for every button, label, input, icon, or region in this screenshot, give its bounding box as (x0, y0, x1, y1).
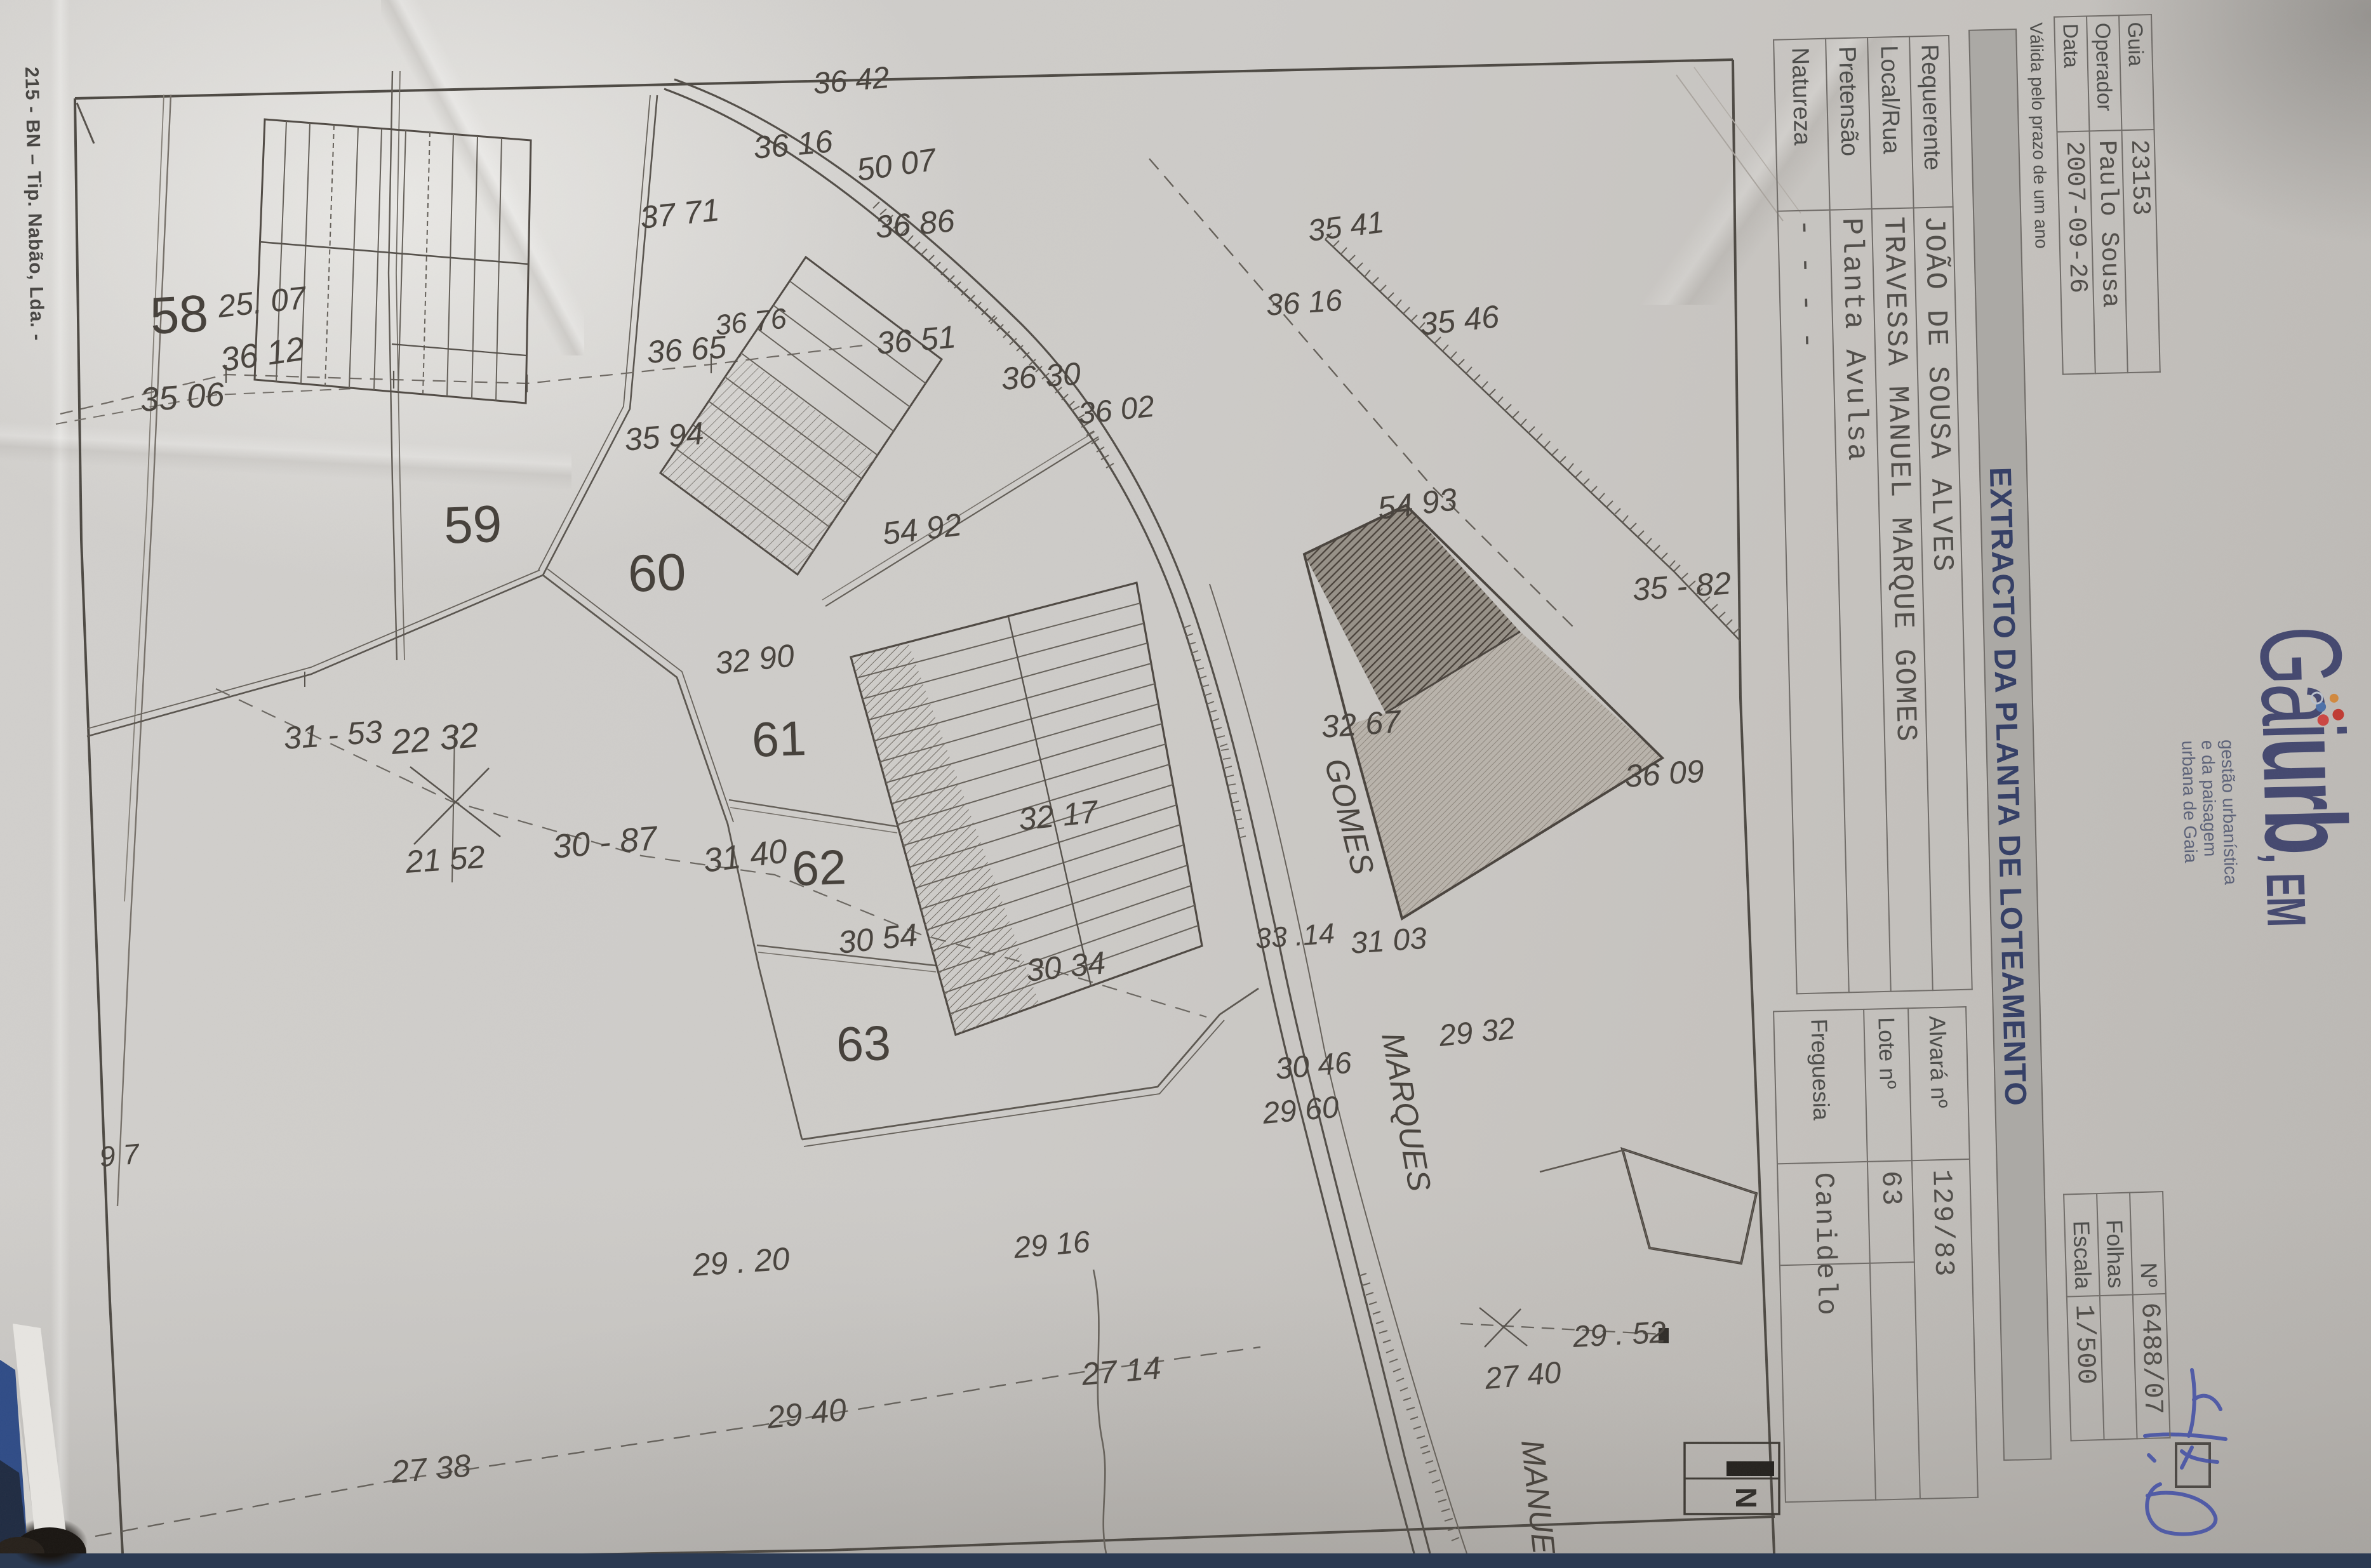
svg-text:9 7: 9 7 (98, 1138, 142, 1173)
svg-text:22 32: 22 32 (389, 715, 481, 762)
svg-text:54 92: 54 92 (881, 507, 964, 552)
svg-text:61: 61 (751, 711, 808, 767)
svg-text:54 93: 54 93 (1376, 481, 1459, 526)
svg-text:32 67: 32 67 (1320, 703, 1403, 745)
svg-text:MARQUES: MARQUES (1375, 1030, 1438, 1194)
svg-text:35 41: 35 41 (1306, 206, 1386, 248)
svg-text:29 . 20: 29 . 20 (691, 1240, 791, 1283)
svg-text:63: 63 (836, 1016, 892, 1072)
svg-text:31 - 53: 31 - 53 (283, 714, 384, 756)
svg-text:35 46: 35 46 (1418, 298, 1500, 342)
svg-text:60: 60 (627, 543, 686, 603)
svg-text:36 65: 36 65 (646, 329, 728, 370)
svg-text:36 12: 36 12 (218, 330, 307, 379)
svg-text:35 06: 35 06 (139, 376, 226, 419)
svg-text:30 46: 30 46 (1274, 1046, 1353, 1086)
svg-text:31 03: 31 03 (1349, 922, 1428, 960)
svg-text:36 51: 36 51 (875, 319, 958, 361)
svg-text:32 17: 32 17 (1017, 794, 1100, 837)
svg-text:25. 07: 25. 07 (215, 279, 309, 324)
svg-text:29 . 52: 29 . 52 (1572, 1315, 1667, 1354)
svg-text:30 - 87: 30 - 87 (551, 820, 660, 866)
svg-text:36 30: 36 30 (1000, 355, 1082, 397)
svg-text:29 16: 29 16 (1012, 1225, 1092, 1265)
svg-text:27 38: 27 38 (389, 1447, 472, 1490)
svg-text:27 14: 27 14 (1079, 1350, 1163, 1392)
svg-text:36 16: 36 16 (1265, 284, 1344, 322)
svg-text:36 02: 36 02 (1077, 390, 1156, 431)
svg-text:29 40: 29 40 (765, 1392, 848, 1435)
svg-text:27 40: 27 40 (1483, 1356, 1563, 1396)
svg-text:36 09: 36 09 (1624, 753, 1706, 794)
svg-text:36 76: 36 76 (714, 302, 789, 342)
svg-text:36 42: 36 42 (811, 61, 890, 101)
svg-text:21 52: 21 52 (404, 839, 486, 880)
svg-text:30 34: 30 34 (1024, 945, 1107, 988)
svg-text:MANUE: MANUE (1514, 1438, 1562, 1553)
svg-text:35 - 82: 35 - 82 (1631, 565, 1732, 608)
svg-text:29 60: 29 60 (1260, 1091, 1340, 1131)
svg-text:30 54: 30 54 (836, 917, 919, 960)
svg-text:37 71: 37 71 (638, 192, 721, 236)
svg-text:36 86: 36 86 (874, 203, 956, 245)
svg-text:50 07: 50 07 (855, 142, 940, 188)
svg-text:33 .14: 33 .14 (1254, 917, 1335, 955)
svg-text:58: 58 (149, 284, 210, 345)
svg-text:32 90: 32 90 (713, 637, 796, 681)
svg-text:31 40: 31 40 (701, 832, 789, 880)
svg-text:59: 59 (443, 495, 502, 555)
svg-text:N: N (1730, 1487, 1763, 1508)
svg-text:35 94: 35 94 (623, 415, 705, 458)
svg-text:62: 62 (791, 840, 848, 896)
svg-text:36 16: 36 16 (752, 123, 834, 166)
svg-text:29 32: 29 32 (1437, 1012, 1517, 1053)
